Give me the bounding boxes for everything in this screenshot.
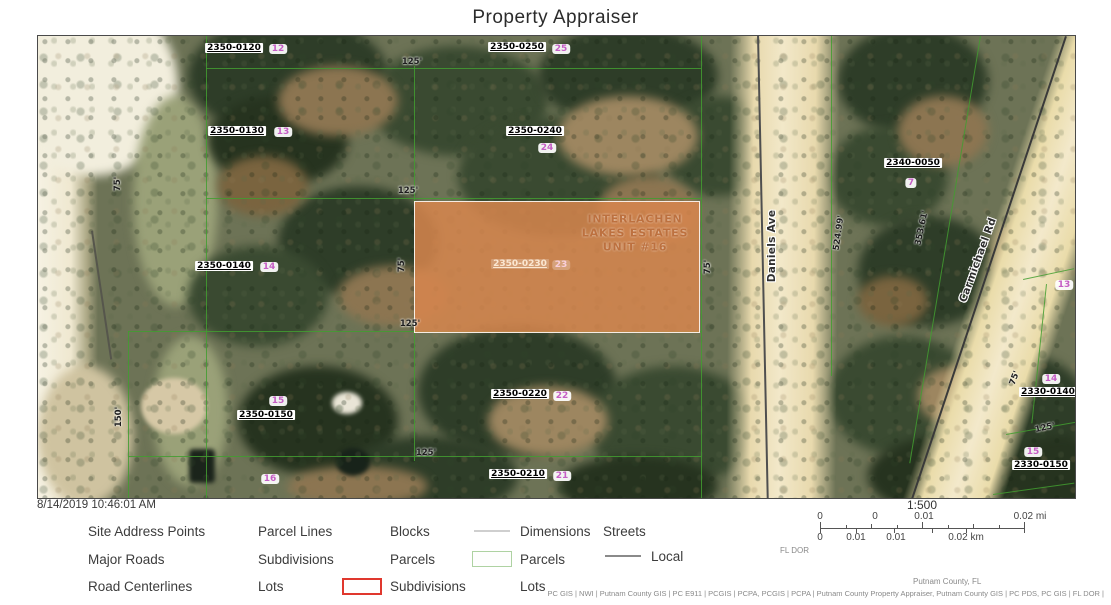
- lot-number-badge: 13: [274, 127, 292, 137]
- parcel-id-label: 2340-0050: [884, 158, 942, 168]
- parcel-id-label: 2330-0140: [1019, 387, 1076, 397]
- lot-number-badge: 14: [260, 262, 278, 272]
- gray-line-swatch: [474, 530, 510, 532]
- legend-item: Subdivisions: [210, 549, 334, 569]
- parcel-id-label: 2350-0210: [489, 469, 547, 479]
- lot-number-badge: 15: [269, 396, 287, 406]
- property-appraiser-page: Property Appraiser: [0, 0, 1111, 605]
- legend-label-local: Local: [651, 549, 683, 564]
- scale-ratio: 1:500: [872, 498, 972, 512]
- lot-number-badge: 7: [905, 178, 916, 188]
- lot-number-badge: 12: [269, 44, 287, 54]
- legend-item: Major Roads: [40, 549, 165, 569]
- street-name-label: Daniels Ave: [766, 210, 778, 283]
- parcel-id-label: 2330-0150: [1012, 460, 1070, 470]
- lot-number-badge: 14: [1042, 374, 1060, 384]
- dimension-label: 75': [397, 258, 407, 272]
- scalebar-tick: [999, 525, 1000, 528]
- scalebar-label: 0: [872, 511, 878, 522]
- scalebar-tick: [846, 525, 847, 528]
- aerial-texture: LAKES ESTATES: [582, 226, 688, 240]
- dimension-label: 353.61': [913, 210, 930, 247]
- dimension-label: 75': [1008, 370, 1022, 387]
- lot-number-badge: 24: [538, 143, 556, 153]
- dimension-label: 125': [1034, 421, 1056, 435]
- legend-item: Site Address Points: [40, 521, 205, 541]
- parcel-id-label: 2350-0150: [237, 410, 295, 420]
- scalebar-label: 0.02 km: [948, 532, 984, 543]
- legend-label: Site Address Points: [88, 524, 205, 539]
- legend-item: Dimensions: [472, 521, 591, 541]
- lot-number-badge: 21: [553, 471, 571, 481]
- map-labels-layer: INTERLACHEN LAKES ESTATES UNIT #16 2350-…: [38, 36, 1075, 498]
- map-viewport[interactable]: INTERLACHEN LAKES ESTATES UNIT #16 2350-…: [37, 35, 1076, 499]
- scalebar-tick: [1024, 522, 1025, 528]
- parcel-id-label: 2350-0220: [491, 389, 549, 399]
- legend-item: Blocks: [342, 521, 430, 541]
- subdivision-label: INTERLACHEN LAKES ESTATES UNIT #16: [582, 212, 688, 253]
- legend-item: Parcels: [342, 549, 435, 569]
- scalebar-line: [820, 528, 1025, 529]
- scalebar-tick: [820, 522, 821, 528]
- scalebar-tick: [932, 529, 933, 533]
- scalebar-label: 0: [817, 511, 823, 522]
- scalebar-tick: [871, 524, 872, 528]
- scalebar-tick: [897, 525, 898, 528]
- street-name-label: Carmichael Rd: [957, 216, 999, 304]
- legend-label: Parcels: [520, 552, 565, 567]
- dimension-label: 125': [400, 319, 420, 329]
- legend-item: Parcel Lines: [210, 521, 332, 541]
- timestamp: 8/14/2019 10:46:01 AM: [37, 499, 156, 511]
- scalebar-label: 0.01: [846, 532, 865, 543]
- legend-item-local: Local: [603, 546, 683, 566]
- dimension-label: 75': [703, 260, 713, 274]
- aerial-texture: INTERLACHEN: [582, 212, 688, 226]
- scalebar-label: 0.01: [886, 532, 905, 543]
- scalebar-tick: [973, 524, 974, 528]
- parcel-id-label-highlighted: 2350-0230: [491, 259, 549, 269]
- dimension-label: 524.99': [832, 215, 847, 251]
- lot-number-badge-highlighted: 23: [552, 260, 570, 270]
- parcel-id-label: 2350-0250: [488, 42, 546, 52]
- lot-number-badge: 13: [1055, 280, 1073, 290]
- legend-item: Parcels: [472, 549, 565, 569]
- legend-label: Subdivisions: [258, 552, 334, 567]
- scalebar-label: 0.01: [914, 511, 933, 522]
- lot-number-badge: 16: [261, 474, 279, 484]
- attribution-county: Putnam County, FL: [913, 577, 981, 586]
- lot-number-badge: 22: [553, 391, 571, 401]
- dimension-label: 150': [114, 407, 124, 427]
- legend-label: Parcels: [390, 552, 435, 567]
- scalebar-tick: [922, 522, 923, 528]
- green-rect-swatch: [472, 551, 512, 567]
- dimension-label: 125': [416, 448, 436, 458]
- local-road-line-swatch: [605, 555, 641, 557]
- parcel-id-label: 2350-0140: [195, 261, 253, 271]
- legend-label: Dimensions: [520, 524, 591, 539]
- dimension-label: 125': [402, 57, 422, 67]
- legend-label: Major Roads: [88, 552, 165, 567]
- lot-number-badge: 25: [552, 44, 570, 54]
- scalebar-tick: [948, 525, 949, 528]
- scalebar-label: 0: [817, 532, 823, 543]
- parcel-id-label: 2350-0240: [506, 126, 564, 136]
- dimension-label: 75': [113, 177, 123, 191]
- legend-label: Blocks: [390, 524, 430, 539]
- page-title: Property Appraiser: [0, 7, 1111, 29]
- legend-label: Parcel Lines: [258, 524, 332, 539]
- lot-number-badge: 15: [1024, 447, 1042, 457]
- scalebar-label: 0.02 mi: [1014, 511, 1047, 522]
- parcel-id-label: 2350-0120: [205, 43, 263, 53]
- scalebar-tick: [1024, 529, 1025, 533]
- parcel-id-label: 2350-0130: [208, 126, 266, 136]
- legend-label-streets: Streets: [603, 524, 646, 539]
- dimension-label: 125': [398, 186, 418, 196]
- scalebar-source: FL DOR: [780, 546, 809, 555]
- attribution-sources: PC GIS | NWI | Putnam County GIS | PC E9…: [0, 589, 1104, 598]
- aerial-texture: UNIT #16: [582, 240, 688, 254]
